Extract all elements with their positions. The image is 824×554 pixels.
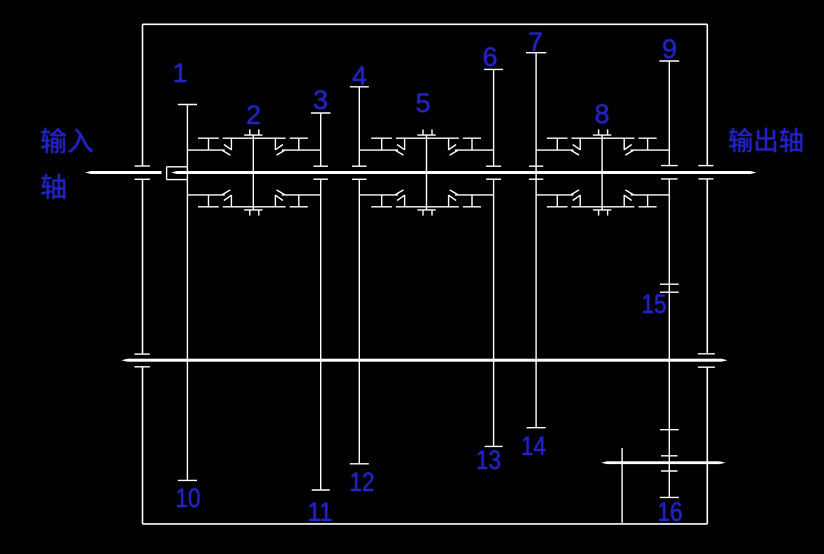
svg-text:16: 16 [658, 497, 683, 527]
svg-text:7: 7 [528, 27, 543, 57]
svg-text:10: 10 [176, 483, 201, 513]
svg-text:13: 13 [476, 445, 501, 475]
svg-text:2: 2 [246, 100, 261, 130]
svg-text:12: 12 [350, 467, 375, 497]
svg-text:14: 14 [521, 431, 546, 461]
svg-text:输出轴: 输出轴 [728, 126, 804, 156]
svg-text:8: 8 [594, 99, 609, 129]
svg-text:3: 3 [313, 85, 328, 115]
svg-text:输入: 输入 [40, 127, 94, 157]
svg-text:9: 9 [662, 34, 677, 64]
svg-text:1: 1 [172, 58, 187, 88]
svg-text:轴: 轴 [40, 173, 67, 203]
svg-text:6: 6 [482, 42, 497, 72]
svg-text:11: 11 [308, 497, 333, 527]
svg-text:5: 5 [415, 88, 430, 118]
svg-text:4: 4 [352, 61, 367, 91]
svg-text:15: 15 [642, 289, 667, 319]
